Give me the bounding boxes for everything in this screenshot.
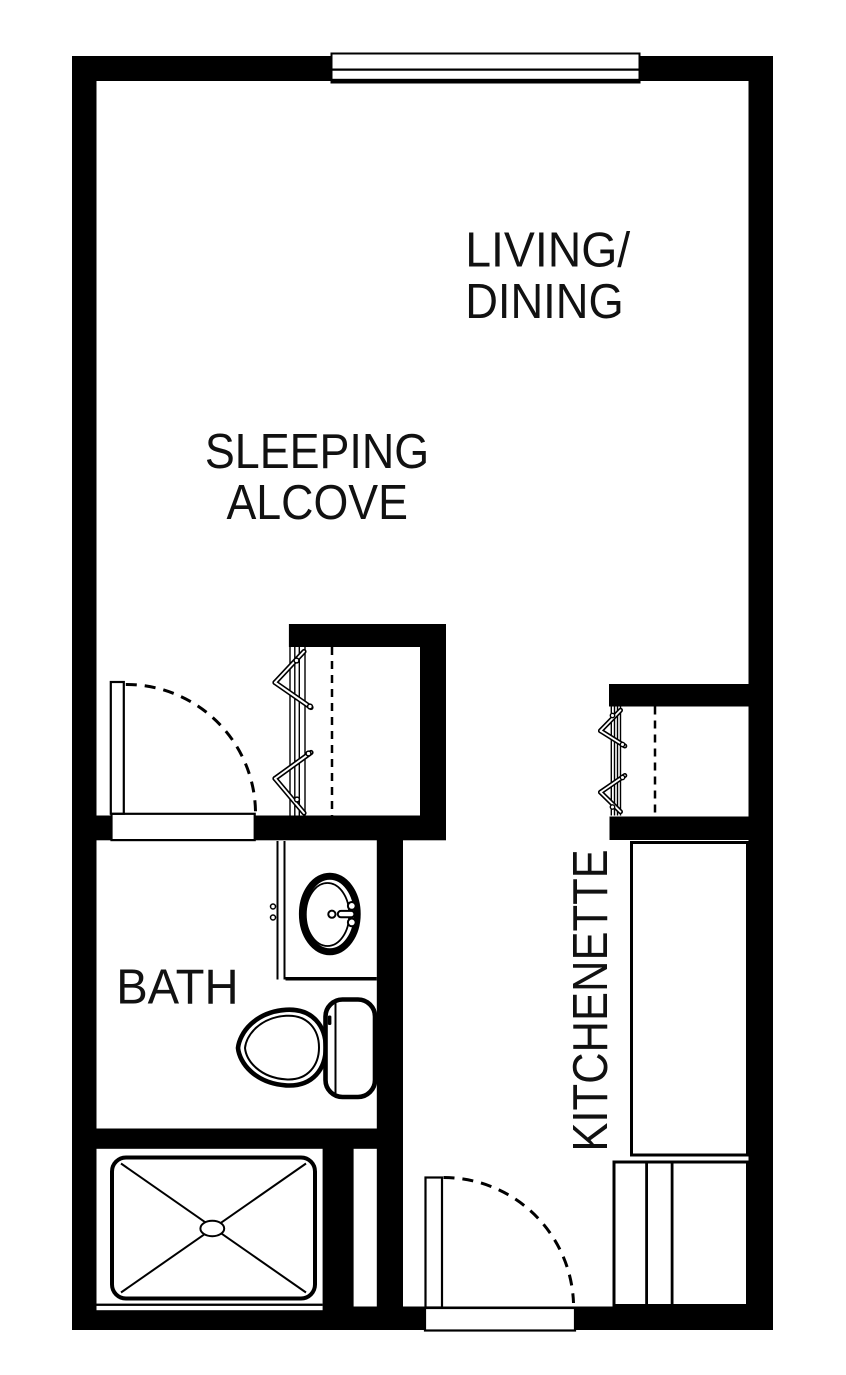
svg-text:KITCHENETTE: KITCHENETTE	[564, 849, 618, 1151]
svg-text:SLEEPING: SLEEPING	[205, 425, 429, 479]
svg-text:BATH: BATH	[116, 961, 238, 1015]
svg-text:DINING: DINING	[465, 275, 624, 329]
svg-text:ALCOVE: ALCOVE	[226, 476, 408, 530]
svg-text:LIVING/: LIVING/	[465, 224, 630, 278]
